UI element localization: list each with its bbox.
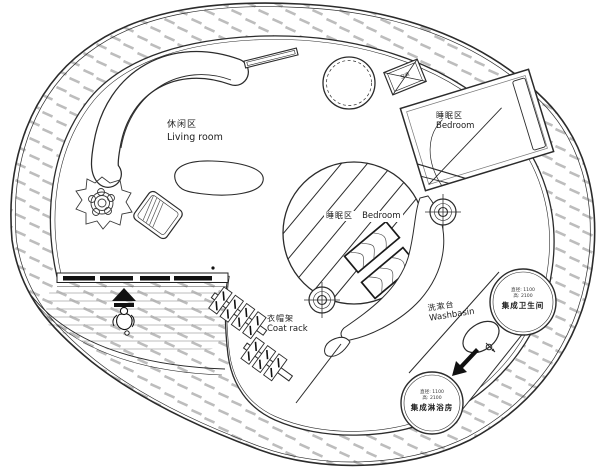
label-bathroom-pod: 直径: 1100 高: 2100 集成卫生间 <box>481 288 565 311</box>
label-bedroom-upper-zh: 睡眠区 <box>436 111 474 121</box>
door-panel <box>100 276 133 281</box>
door-panel <box>63 276 95 281</box>
label-shower-pod: 直径: 1100 高: 2100 集成淋浴房 <box>390 390 474 413</box>
bathroom-pod-name: 集成卫生间 <box>481 300 565 311</box>
label-bedroom-center: 睡眠区 Bedroom <box>324 203 403 224</box>
label-coat-rack-en: Coat rack <box>267 324 308 335</box>
label-bedroom-upper: 睡眠区 Bedroom <box>436 111 474 132</box>
shower-pod-name: 集成淋浴房 <box>390 402 474 413</box>
label-bedroom-center-en: Bedroom <box>360 211 402 222</box>
floor-plan: 休闲区 Living room 睡眠区 Bedroom 睡眠区 Bedroom … <box>0 0 611 473</box>
wall-dot <box>211 266 214 269</box>
label-bedroom-center-zh: 睡眠区 <box>324 211 355 221</box>
bathroom-pod-height: 高: 2100 <box>481 294 565 300</box>
label-bedroom-upper-en: Bedroom <box>436 121 474 132</box>
label-living-room: 休闲区 Living room <box>167 120 223 144</box>
label-coat-rack: 衣帽架 Coat rack <box>267 314 308 335</box>
round-table <box>323 57 375 109</box>
floor-plan-drawing <box>0 0 611 473</box>
door-panel <box>174 276 212 281</box>
shower-pod-height: 高: 2100 <box>390 396 474 402</box>
door-panel <box>140 276 170 281</box>
label-living-room-zh: 休闲区 <box>167 120 223 132</box>
label-coat-rack-zh: 衣帽架 <box>267 314 308 324</box>
label-living-room-en: Living room <box>167 132 223 144</box>
